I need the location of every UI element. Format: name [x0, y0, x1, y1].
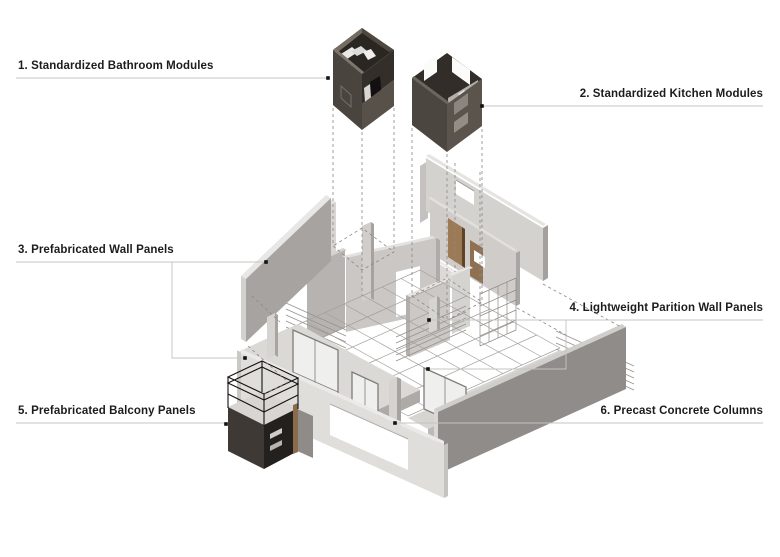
label-prefabricated-balcony-panels: 5. Prefabricated Balcony Panels	[18, 405, 196, 417]
bathroom-module-drawing	[333, 28, 394, 130]
label-lightweight-partition-wall-panels: 4. Lightweight Parition Wall Panels	[570, 302, 764, 314]
label-text: 3. Prefabricated Wall Panels	[18, 244, 174, 256]
label-text: 1. Standardized Bathroom Modules	[18, 60, 214, 72]
axonometric-drawing	[0, 0, 780, 557]
label-text: 4. Lightweight Parition Wall Panels	[570, 302, 764, 314]
right-wall-panel-drawing	[434, 324, 626, 474]
label-text: 2. Standardized Kitchen Modules	[580, 88, 763, 100]
diagram-canvas: 1. Standardized Bathroom Modules 2. Stan…	[0, 0, 780, 557]
label-prefabricated-wall-panels: 3. Prefabricated Wall Panels	[18, 244, 174, 256]
label-standardized-kitchen-modules: 2. Standardized Kitchen Modules	[580, 88, 763, 100]
label-standardized-bathroom-modules: 1. Standardized Bathroom Modules	[18, 60, 214, 72]
label-precast-concrete-columns: 6. Precast Concrete Columns	[601, 405, 763, 417]
label-text: 5. Prefabricated Balcony Panels	[18, 405, 196, 417]
label-text: 6. Precast Concrete Columns	[601, 405, 763, 417]
kitchen-module-drawing	[412, 53, 482, 152]
